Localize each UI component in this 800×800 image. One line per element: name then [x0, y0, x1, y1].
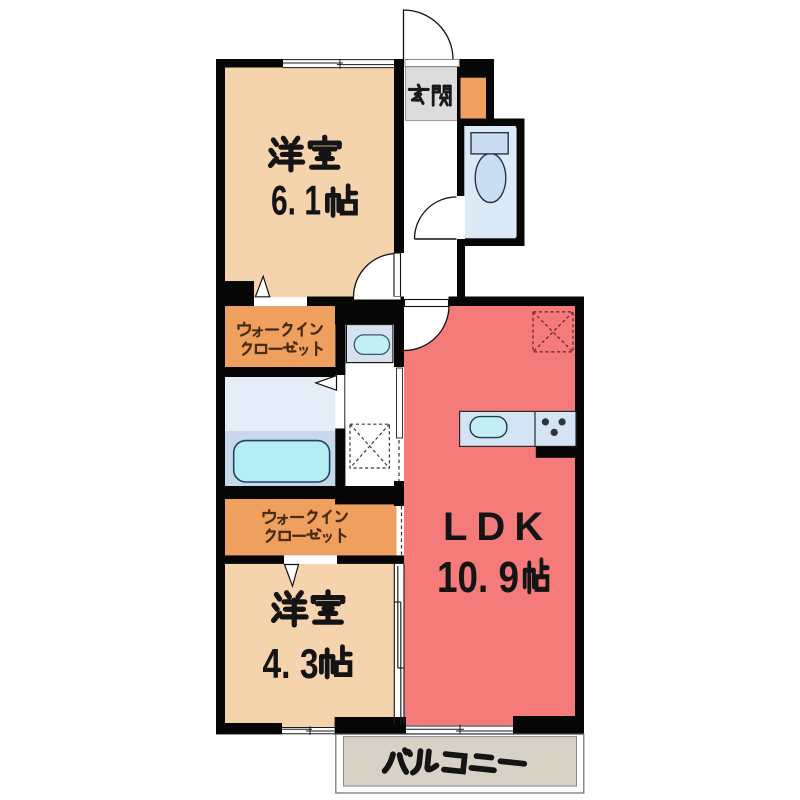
svg-text:6. 1: 6. 1: [271, 177, 321, 224]
svg-text:LDK: LDK: [443, 505, 552, 549]
svg-text:10. 9: 10. 9: [437, 553, 519, 602]
svg-text:4. 3: 4. 3: [263, 640, 319, 687]
